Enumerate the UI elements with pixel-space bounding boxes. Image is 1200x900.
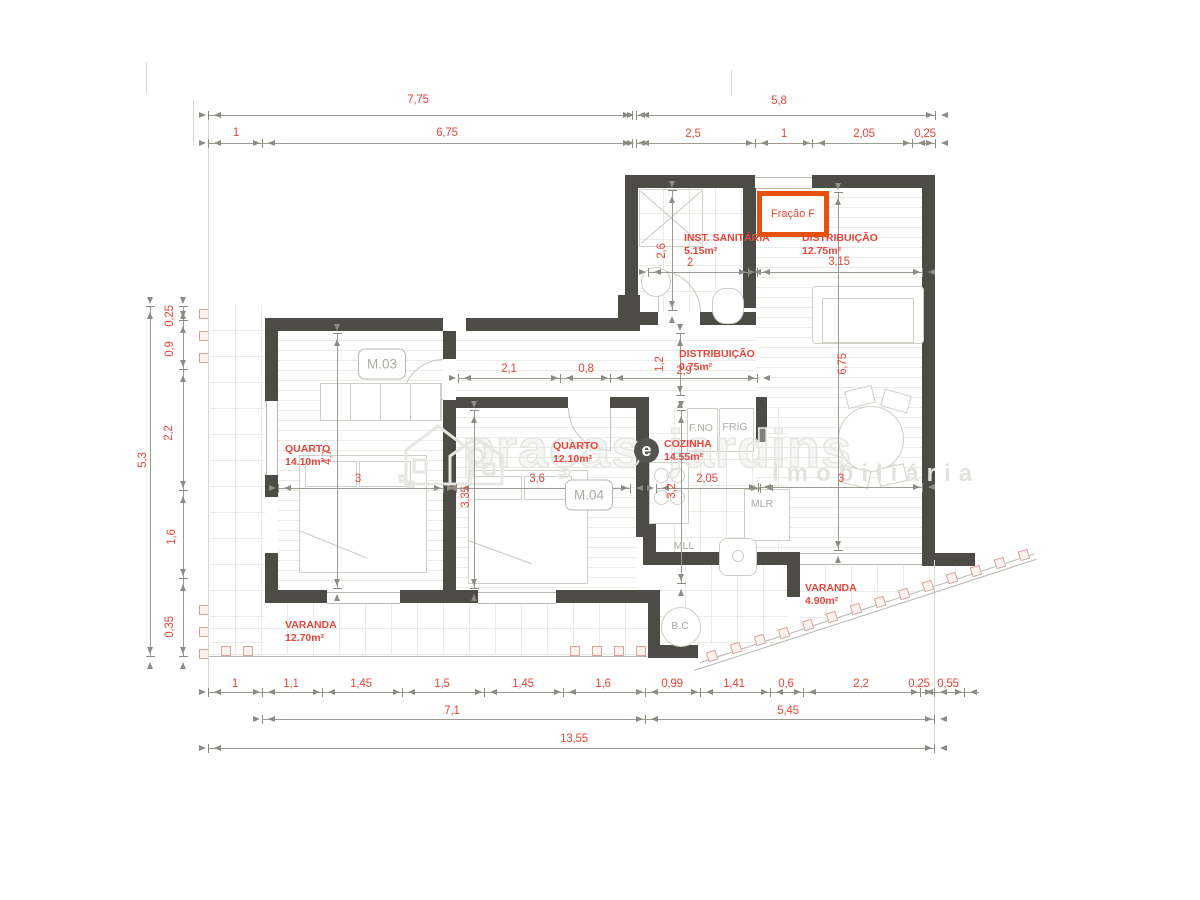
- room-label-varanda-1: VARANDA12.70m²: [285, 619, 337, 644]
- room-area: 4.90m²: [805, 595, 857, 608]
- room-name: VARANDA: [285, 619, 337, 632]
- room-area: 14.55m²: [664, 451, 712, 464]
- room-area: 5.15m²: [684, 245, 770, 258]
- room-area: 0.75m²: [679, 361, 755, 374]
- room-name: COZINHA: [664, 438, 712, 451]
- fixture-label-m03: M.03: [358, 349, 406, 380]
- room-label-cozinha: COZINHA14.55m²: [664, 438, 712, 463]
- room-area: 12.10m²: [553, 453, 598, 466]
- fraction-badge-text: Fração F: [771, 208, 815, 220]
- room-name: QUARTO: [285, 443, 330, 456]
- room-area: 12.70m²: [285, 632, 337, 645]
- room-name: VARANDA: [805, 582, 857, 595]
- room-labels-layer: QUARTO14.10m²QUARTO12.10m²COZINHA14.55m²…: [0, 0, 1200, 900]
- fixture-label-fno: F.NO: [689, 422, 713, 434]
- fixture-label-m04: M.04: [565, 480, 613, 511]
- fixture-label-frig: FRIG: [722, 421, 747, 433]
- room-label-quarto-1: QUARTO14.10m²: [285, 443, 330, 468]
- room-area: 12.75m²: [802, 245, 878, 258]
- room-label-distribuicao-2: DISTRIBUIÇÃO0.75m²: [679, 348, 755, 373]
- floor-plan-canvas: praças e jardins imobiliária 7,755,816,7…: [0, 0, 1200, 900]
- room-name: QUARTO: [553, 440, 598, 453]
- room-label-varanda-2: VARANDA4.90m²: [805, 582, 857, 607]
- fixture-label-mll: MLL: [674, 540, 694, 552]
- room-area: 14.10m²: [285, 456, 330, 469]
- room-name: DISTRIBUIÇÃO: [679, 348, 755, 361]
- fraction-badge: Fração F: [757, 191, 829, 237]
- fixture-label-mlr: MLR: [751, 498, 773, 510]
- room-label-quarto-2: QUARTO12.10m²: [553, 440, 598, 465]
- fixture-label-bc: B.C: [671, 620, 689, 632]
